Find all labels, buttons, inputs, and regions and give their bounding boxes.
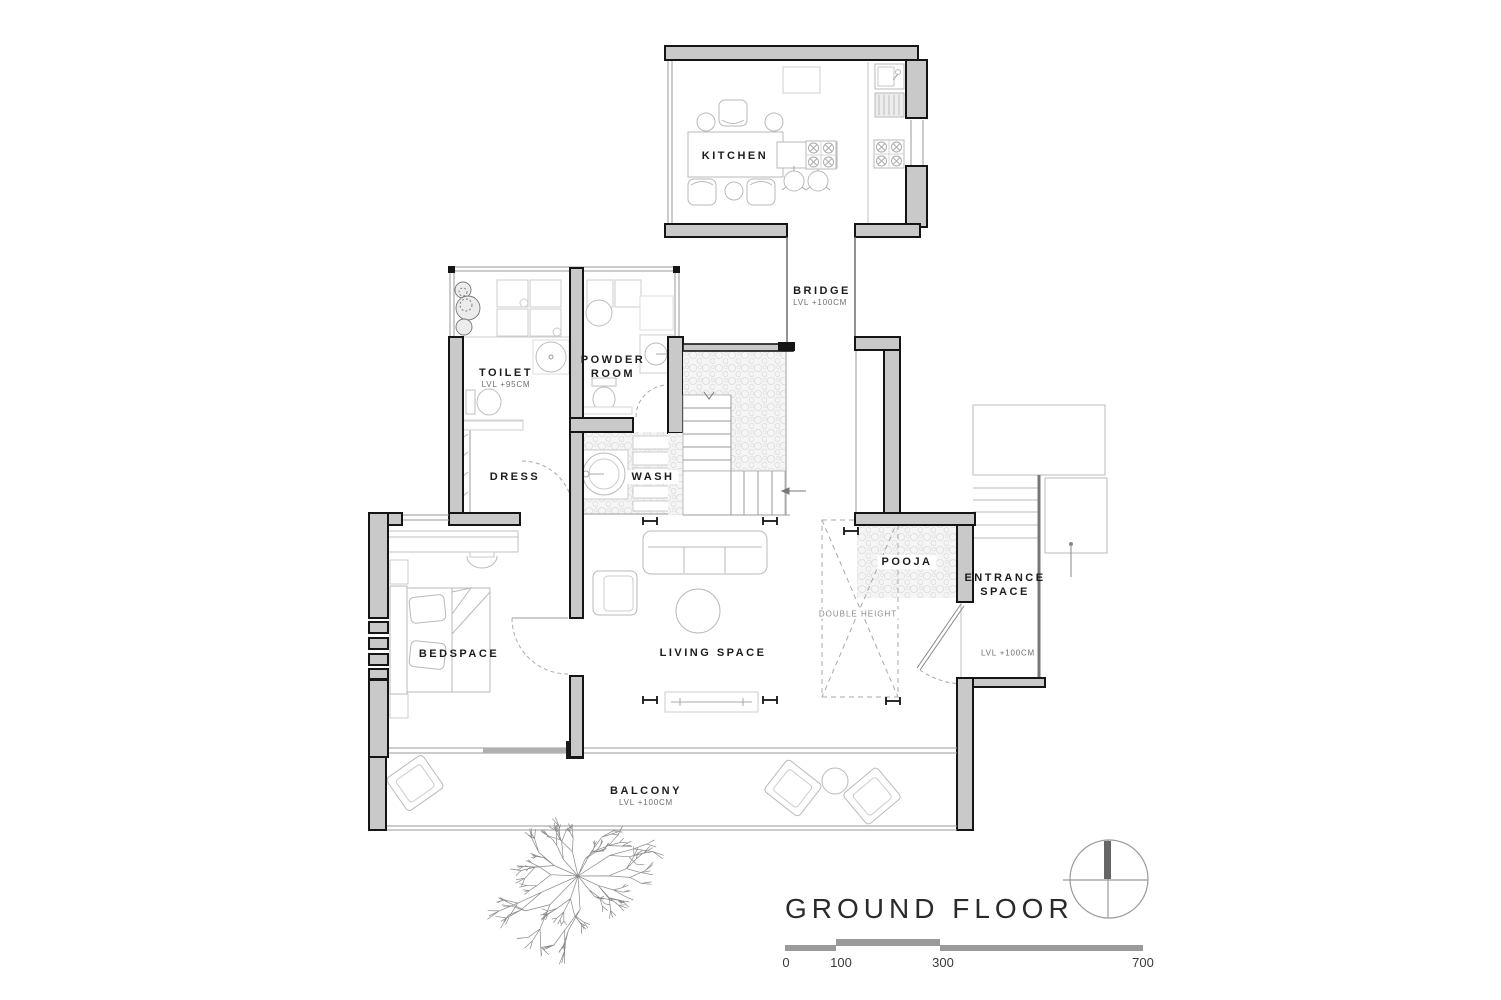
double-height-label: DOUBLE HEIGHT bbox=[817, 610, 899, 619]
bridge-level-text: LVL +100CM bbox=[793, 298, 851, 307]
room-label-living-space: LIVING SPACE bbox=[660, 647, 767, 659]
powder-door-swing bbox=[636, 385, 668, 417]
entrance-level-text: LVL +100CM bbox=[981, 649, 1035, 658]
toilet-level-text: LVL +95CM bbox=[479, 380, 533, 389]
scale-bar-segment bbox=[785, 945, 836, 951]
drawing-title: GROUND FLOOR bbox=[785, 893, 1074, 925]
shower-tiles bbox=[463, 280, 641, 337]
room-label-bridge: BRIDGE LVL +100CM bbox=[793, 285, 851, 307]
room-label-pooja: POOJA bbox=[877, 555, 936, 569]
coffee-table bbox=[676, 589, 720, 633]
plant-icon bbox=[455, 282, 480, 335]
bed bbox=[390, 560, 490, 718]
staircase bbox=[668, 342, 806, 515]
scale-label-100: 100 bbox=[830, 955, 852, 970]
north-indicator-icon bbox=[1063, 840, 1148, 918]
scale-bar-segment bbox=[940, 945, 1143, 951]
sofa bbox=[593, 531, 767, 712]
scale-label-0: 0 bbox=[782, 955, 789, 970]
scale-label-300: 300 bbox=[932, 955, 954, 970]
balcony-sliding-door bbox=[388, 741, 957, 759]
bedspace-door bbox=[512, 618, 568, 674]
entry-arrow bbox=[1069, 542, 1073, 577]
room-label-kitchen: KITCHEN bbox=[702, 150, 768, 162]
kitchen-furniture bbox=[688, 64, 904, 205]
room-label-powder-room: POWDER ROOM bbox=[581, 353, 646, 381]
tree-icon bbox=[487, 817, 663, 964]
balcony-level-text: LVL +100CM bbox=[610, 798, 682, 807]
room-label-toilet: TOILET LVL +95CM bbox=[479, 367, 533, 389]
room-label-wash: WASH bbox=[628, 470, 679, 484]
entrance-door bbox=[917, 601, 964, 684]
room-label-dress: DRESS bbox=[490, 471, 540, 483]
room-label-balcony: BALCONY LVL +100CM bbox=[610, 785, 682, 807]
scale-bar-segment bbox=[836, 939, 940, 946]
scale-label-700: 700 bbox=[1132, 955, 1154, 970]
dress-door-swing bbox=[522, 461, 573, 512]
kitchen-block bbox=[665, 46, 927, 237]
room-label-entrance-space: ENTRANCE SPACE bbox=[964, 571, 1045, 599]
room-label-bedspace: BEDSPACE bbox=[419, 648, 499, 660]
floor-plan-page: KITCHEN BRIDGE LVL +100CM TOILET LVL +95… bbox=[0, 0, 1501, 1000]
